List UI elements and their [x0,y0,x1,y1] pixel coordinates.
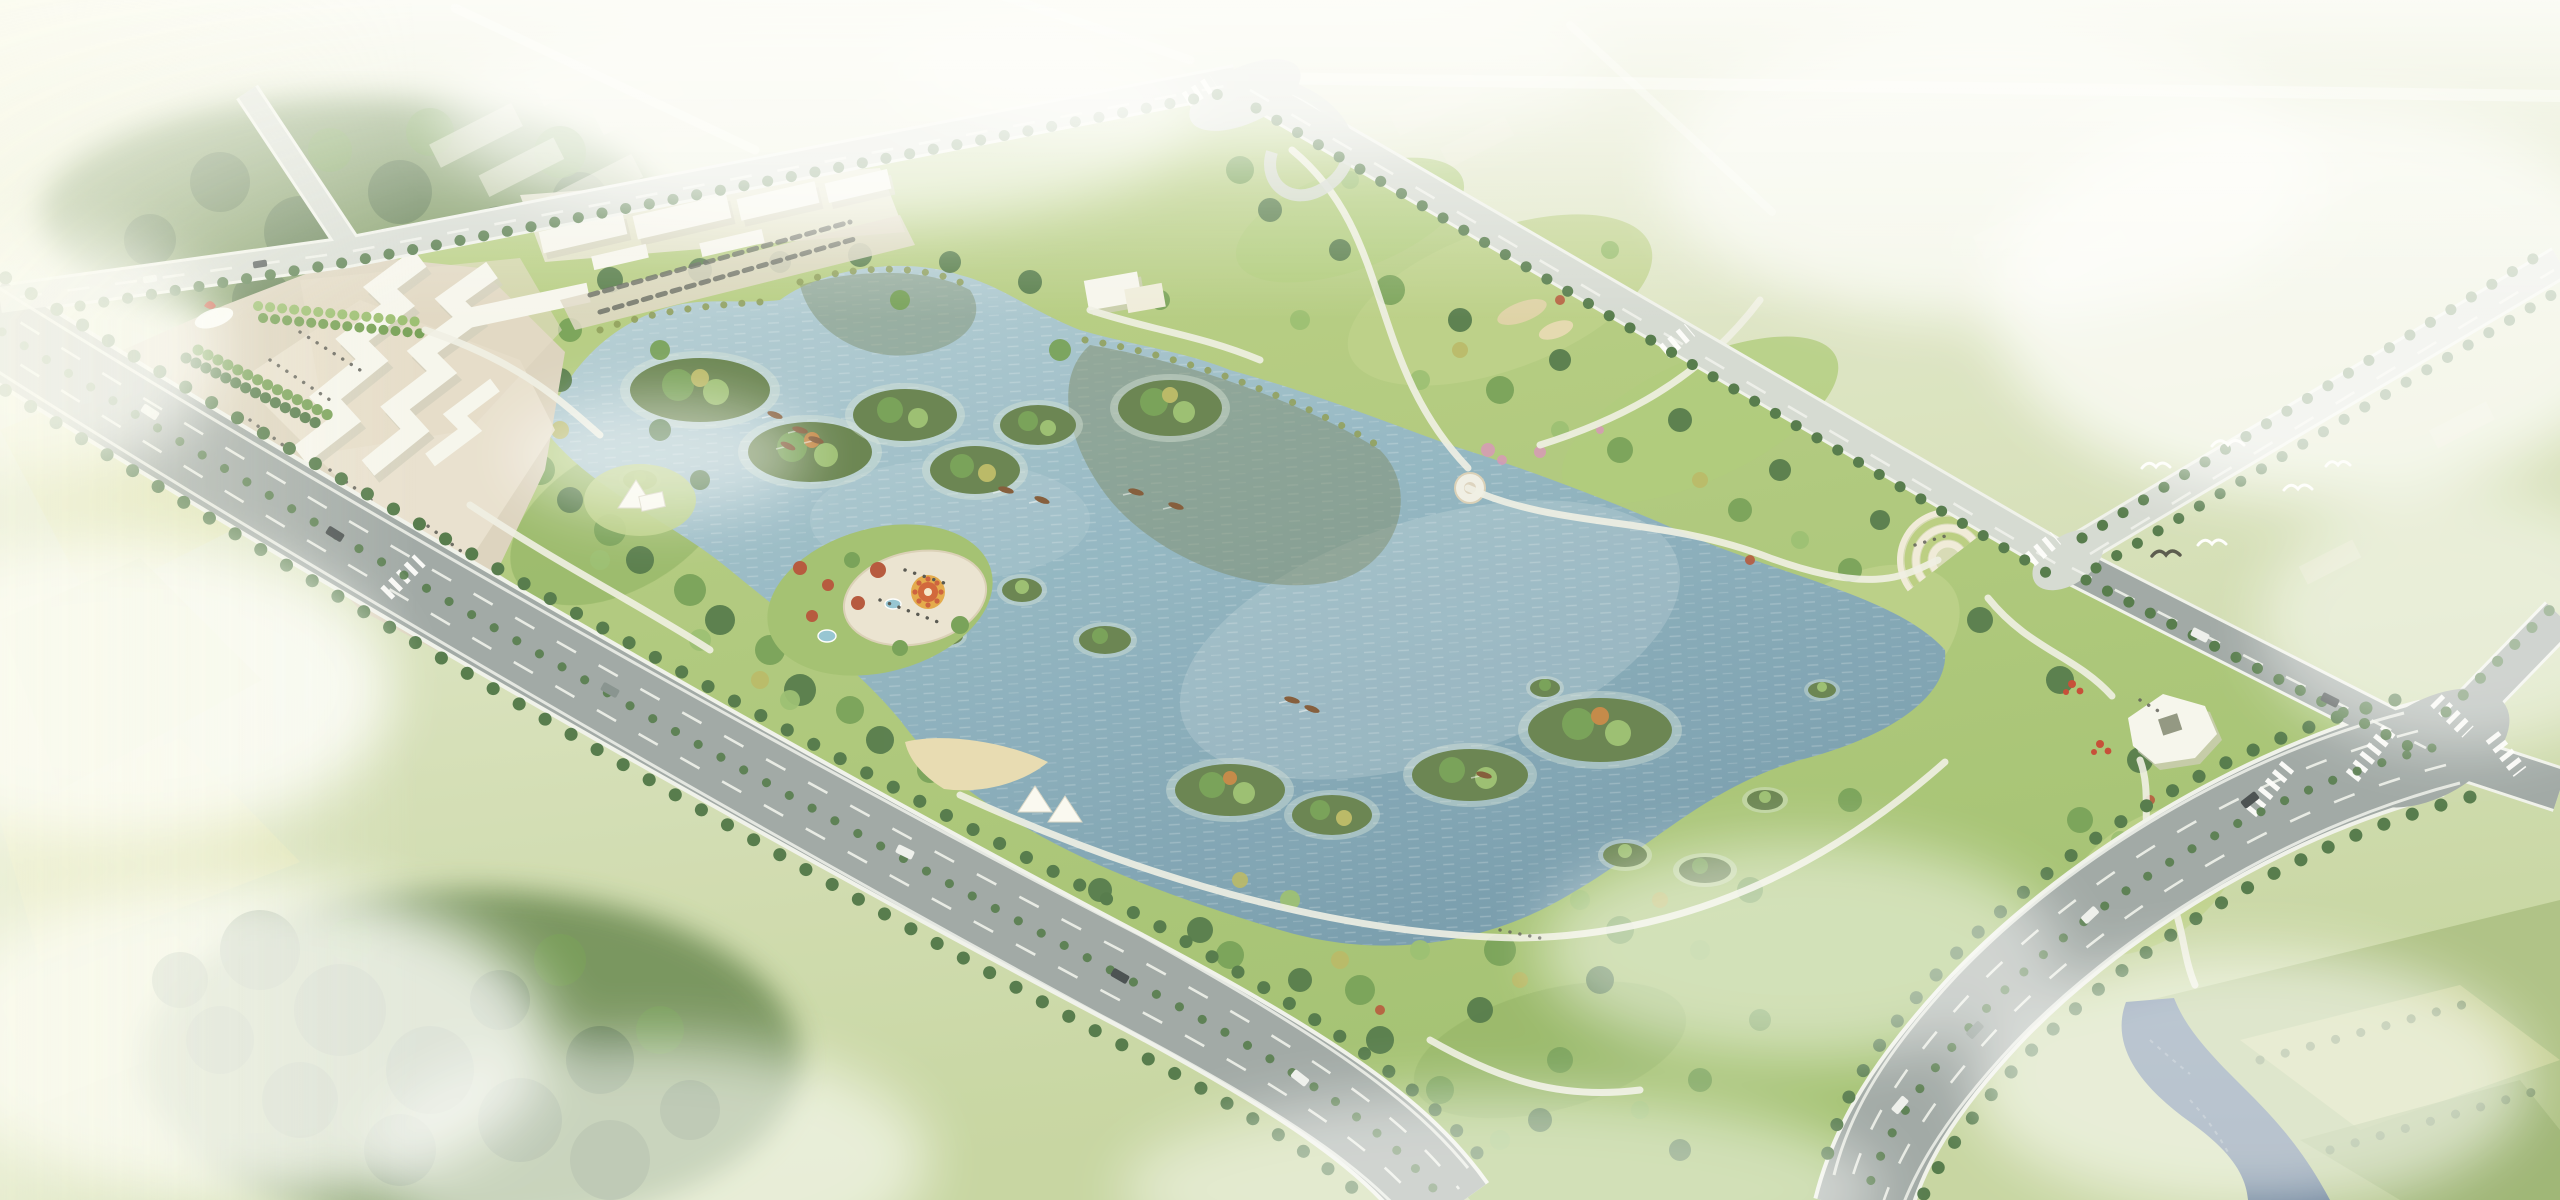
warm-tint [0,0,2560,1200]
viewport [0,0,2560,1200]
aerial-rendering [0,0,2560,1200]
